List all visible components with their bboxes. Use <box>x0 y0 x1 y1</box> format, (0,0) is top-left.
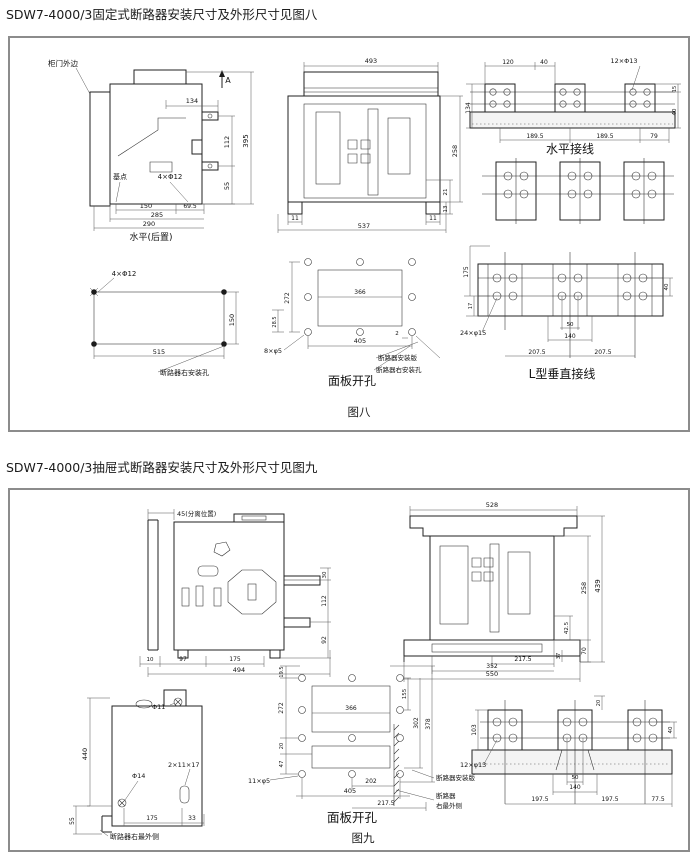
dim-label: 405 <box>354 337 366 345</box>
label-breaker-rightmost-side-2: 右最外侧 <box>436 801 462 810</box>
dim-label: 395 <box>242 134 250 147</box>
dim-label: 272 <box>278 702 285 714</box>
label-hole-spec: 24×φ15 <box>460 329 486 337</box>
fig9-side-view-drawing: 45(分离位置)30112921097175494 <box>134 500 374 680</box>
dim-label: 40 <box>664 283 670 290</box>
fig9-front-view-line-art <box>404 506 605 682</box>
label-hole-spec: Φ14 <box>132 772 145 780</box>
dim-label: 378 <box>425 718 432 730</box>
fig8-vertical-connection-top-line-art <box>482 158 674 224</box>
dim-label: 155 <box>402 688 408 699</box>
label-base-point: 基点 <box>113 172 127 181</box>
dim-label: 77.5 <box>651 796 665 803</box>
fig9-connection-drawing: 103204012×φ1350140197.5197.577.5 <box>460 672 685 812</box>
dim-label: 140 <box>564 333 576 340</box>
dim-label: 217.5 <box>514 656 531 663</box>
dim-label: 21 <box>443 189 449 196</box>
label-breaker-right-mount-hole: 断路器右安装孔 <box>376 365 422 374</box>
dim-label: 175 <box>463 266 470 278</box>
figure8-label: 图八 <box>314 404 404 420</box>
dim-label: 17 <box>468 303 474 309</box>
label-breaker-rightmost-side: 断路器 <box>436 791 456 800</box>
dim-label: 11 <box>429 215 437 222</box>
dim-label: 150 <box>228 314 236 326</box>
dim-label: 366 <box>354 289 366 296</box>
dim-label: 175 <box>146 815 158 822</box>
dim-label: 28.5 <box>272 316 278 327</box>
fig8-mounting-holes-line-art <box>90 278 239 372</box>
dim-label: 440 <box>81 748 89 760</box>
fig8-l-vertical-connection-drawing: 1751724×φ154050140207.5207.5L型垂直接线 <box>460 234 688 384</box>
fig9-title: SDW7-4000/3抽屉式断路器安装尺寸及外形尺寸见图九 <box>6 457 317 476</box>
label-slot-spec: 2×11×17 <box>168 761 200 769</box>
fig9-panel-cutout-drawing: 19.5272204736615530237811×φ5202405217.5断… <box>240 658 490 846</box>
fig8-title: SDW7-4000/3固定式断路器安装尺寸及外形尺寸见图八 <box>6 4 317 23</box>
dim-label: 285 <box>151 211 163 219</box>
dim-label: 112 <box>321 595 328 607</box>
dim-label: 217.5 <box>377 800 394 807</box>
dim-label: 69.5 <box>183 203 197 210</box>
fig8-side-view-drawing: 柜门外边A13411255395基点4×Φ1215069.5285290水平(后… <box>46 56 281 246</box>
dim-label: 92 <box>321 636 328 644</box>
dim-label: 20 <box>596 700 602 706</box>
label-hole-spec: 11×φ5 <box>248 777 270 785</box>
dim-label: 55 <box>69 817 76 825</box>
dim-label: 37 <box>556 653 562 659</box>
fig9-front-view-drawing: 52825843942.57037217.5352550 <box>392 498 612 684</box>
dim-label: 439 <box>594 579 602 592</box>
dim-label: 207.5 <box>528 349 545 356</box>
dim-label: 493 <box>365 57 377 65</box>
fig8-side-view-line-art <box>76 68 254 231</box>
label-separated-position: 45(分离位置) <box>177 509 216 518</box>
view-caption: 水平(后置) <box>129 231 172 243</box>
dim-label: 258 <box>580 582 588 594</box>
label-breaker-mount-plate: 断路器安装版 <box>378 353 418 362</box>
fig8-l-vertical-connection-line-art <box>464 246 673 358</box>
dim-label: 70 <box>581 647 588 655</box>
dim-label: 50 <box>567 322 574 328</box>
figure8-frame: 柜门外边A13411255395基点4×Φ1215069.5285290水平(后… <box>8 36 690 432</box>
fig8-front-view-line-art <box>278 62 463 233</box>
dim-label: 258 <box>451 145 459 157</box>
dim-label: 33 <box>188 815 196 822</box>
label-hole-spec: Φ11 <box>152 703 165 711</box>
label-breaker-right-mount-hole: 断路器右安装孔 <box>160 368 209 377</box>
label-hole-spec: 4×Φ12 <box>158 173 183 181</box>
view-caption: 面板开孔 <box>328 374 376 388</box>
fig8-front-view-drawing: 49325821131111537 <box>276 54 466 234</box>
dim-label: 79 <box>650 133 658 140</box>
dim-label: 515 <box>153 348 165 356</box>
dim-label: 537 <box>358 222 370 230</box>
dim-label: 405 <box>344 787 356 795</box>
dim-label: 42.5 <box>564 621 570 634</box>
dim-label: 272 <box>284 292 291 304</box>
dim-label: 366 <box>345 705 357 712</box>
figure9-label: 图九 <box>318 830 408 846</box>
dim-label: 40 <box>672 108 678 115</box>
dim-label: 15 <box>672 86 678 92</box>
dim-label: 189.5 <box>596 133 613 140</box>
dim-label: 19.5 <box>279 666 285 677</box>
dim-label: 97 <box>179 656 187 663</box>
dim-label: 290 <box>143 220 155 228</box>
fig8-horizontal-connection-drawing: 1204012×Φ131341540189.5189.579水平接线 <box>462 54 687 154</box>
dim-label: 197.5 <box>601 796 618 803</box>
dim-label: 197.5 <box>531 796 548 803</box>
label-hole-spec: 12×Φ13 <box>610 57 637 65</box>
dim-label: 103 <box>471 724 478 736</box>
dim-label: 120 <box>502 59 514 66</box>
dim-label: 13 <box>443 205 449 212</box>
label-hole-spec: 8×φ5 <box>264 347 282 355</box>
dim-label: 2 <box>395 331 399 337</box>
dim-label: 40 <box>540 59 548 66</box>
view-caption: L型垂直接线 <box>529 366 596 381</box>
dim-label: 40 <box>668 726 674 733</box>
dim-label: 112 <box>223 136 231 148</box>
fig8-horizontal-connection-line-art <box>466 62 681 143</box>
fig8-mounting-holes-drawing: 4×Φ12150515断路器右安装孔 <box>62 264 252 382</box>
dim-label: 20 <box>279 743 285 749</box>
view-caption: 面板开孔 <box>327 810 378 825</box>
dim-label: 202 <box>365 778 377 785</box>
dim-label: 10 <box>147 657 154 663</box>
dim-label: 189.5 <box>526 133 543 140</box>
fig9-side-plate-drawing: Φ1144055Φ142×11×1717533断路器右最外侧 <box>52 676 252 844</box>
label-hole-spec: 12×φ13 <box>460 761 486 769</box>
dim-label: 47 <box>279 760 285 767</box>
scanned-catalog-page: SDW7-4000/3固定式断路器安装尺寸及外形尺寸见图八 柜门外边A13411… <box>0 0 700 854</box>
dim-label: 50 <box>572 775 579 781</box>
dim-label: 30 <box>322 571 328 578</box>
dim-label: 528 <box>486 501 498 509</box>
dim-label: 207.5 <box>594 349 611 356</box>
dim-label: 150 <box>140 202 152 210</box>
fig8-vertical-connection-top-view <box>478 156 678 228</box>
dim-label: 134 <box>186 97 198 105</box>
figure9-frame: 45(分离位置)30112921097175494 52825843942.57… <box>8 488 690 852</box>
view-caption: 水平接线 <box>546 141 594 156</box>
fig9-side-view-line-art <box>140 509 331 677</box>
section-arrow-label: A <box>225 76 231 85</box>
dim-label: 134 <box>465 102 472 114</box>
label-hole-spec: 4×Φ12 <box>112 270 137 278</box>
label-breaker-rightmost-side: 断路器右最外侧 <box>110 832 159 841</box>
dim-label: 55 <box>223 182 231 190</box>
label-cabinet-door-edge: 柜门外边 <box>48 58 78 68</box>
dim-label: 140 <box>569 784 581 791</box>
dim-label: 11 <box>291 215 299 222</box>
fig8-panel-cutout-drawing: 27228.53668×φ54052断路器安装版断路器右安装孔面板开孔 <box>250 242 455 387</box>
dim-label: 302 <box>413 717 420 729</box>
